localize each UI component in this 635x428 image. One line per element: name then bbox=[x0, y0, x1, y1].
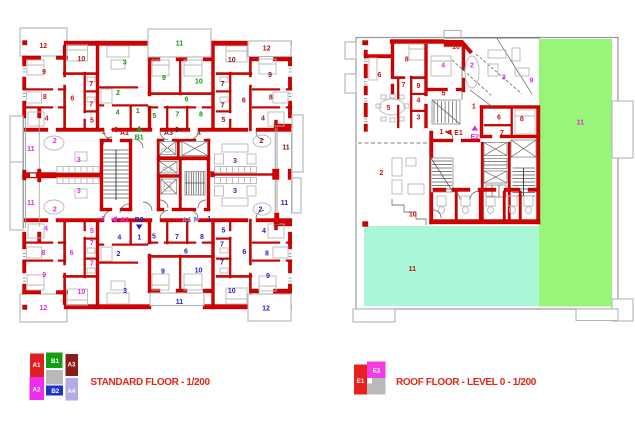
svg-text:1: 1 bbox=[137, 235, 141, 242]
svg-text:11: 11 bbox=[27, 200, 35, 207]
svg-text:7: 7 bbox=[89, 81, 93, 88]
svg-text:6: 6 bbox=[70, 96, 74, 103]
svg-text:10: 10 bbox=[195, 79, 203, 86]
svg-text:A4: A4 bbox=[67, 388, 75, 395]
svg-text:E2: E2 bbox=[471, 134, 480, 141]
svg-text:10: 10 bbox=[452, 44, 460, 51]
svg-text:E1: E1 bbox=[454, 130, 463, 137]
svg-text:9: 9 bbox=[530, 77, 534, 84]
svg-text:10: 10 bbox=[228, 57, 236, 64]
svg-text:6: 6 bbox=[185, 96, 189, 103]
svg-text:8: 8 bbox=[405, 57, 409, 64]
svg-text:2: 2 bbox=[379, 170, 383, 177]
svg-text:5: 5 bbox=[152, 113, 156, 120]
svg-text:3: 3 bbox=[502, 74, 506, 81]
svg-text:A1: A1 bbox=[120, 130, 129, 137]
svg-text:6: 6 bbox=[184, 248, 188, 255]
svg-text:4: 4 bbox=[262, 228, 266, 235]
svg-text:10: 10 bbox=[195, 267, 203, 274]
svg-text:10: 10 bbox=[409, 211, 417, 218]
svg-text:1: 1 bbox=[207, 216, 211, 223]
svg-text:10: 10 bbox=[78, 289, 86, 296]
svg-text:A1: A1 bbox=[33, 362, 41, 369]
svg-text:7: 7 bbox=[90, 240, 94, 247]
svg-text:E1: E1 bbox=[357, 378, 365, 385]
svg-text:9: 9 bbox=[42, 69, 46, 76]
svg-text:4: 4 bbox=[261, 115, 265, 122]
svg-text:11: 11 bbox=[281, 200, 289, 207]
svg-text:11: 11 bbox=[282, 145, 290, 152]
svg-text:7: 7 bbox=[89, 102, 93, 109]
svg-text:7: 7 bbox=[175, 234, 179, 241]
svg-text:8: 8 bbox=[269, 94, 273, 101]
svg-text:6: 6 bbox=[242, 249, 246, 256]
svg-text:2: 2 bbox=[53, 206, 57, 213]
svg-text:7: 7 bbox=[401, 82, 405, 89]
svg-text:5: 5 bbox=[90, 228, 94, 235]
svg-text:5: 5 bbox=[90, 118, 94, 125]
svg-text:12: 12 bbox=[39, 43, 47, 50]
svg-text:A4: A4 bbox=[182, 217, 191, 224]
svg-text:2: 2 bbox=[117, 251, 121, 258]
svg-text:8: 8 bbox=[200, 234, 204, 241]
svg-text:7: 7 bbox=[500, 130, 504, 137]
svg-text:2: 2 bbox=[116, 90, 120, 97]
svg-text:3: 3 bbox=[233, 188, 237, 195]
svg-text:10: 10 bbox=[228, 288, 236, 295]
svg-text:5: 5 bbox=[387, 105, 391, 112]
svg-text:4: 4 bbox=[117, 235, 121, 242]
svg-text:2: 2 bbox=[260, 138, 264, 145]
svg-text:7: 7 bbox=[90, 260, 94, 267]
svg-text:8: 8 bbox=[199, 112, 203, 119]
svg-text:7: 7 bbox=[220, 260, 224, 267]
svg-text:7: 7 bbox=[220, 241, 224, 248]
svg-text:B2: B2 bbox=[135, 217, 144, 224]
svg-text:A3: A3 bbox=[68, 362, 76, 369]
svg-text:9: 9 bbox=[42, 272, 46, 279]
svg-text:ROOF FLOOR - LEVEL 0 - 1/200: ROOF FLOOR - LEVEL 0 - 1/200 bbox=[396, 377, 537, 388]
svg-text:12: 12 bbox=[40, 305, 48, 312]
svg-text:1: 1 bbox=[440, 129, 444, 136]
svg-text:9: 9 bbox=[416, 83, 420, 90]
svg-text:2: 2 bbox=[470, 62, 474, 69]
svg-text:1: 1 bbox=[136, 108, 140, 115]
svg-text:A2: A2 bbox=[120, 217, 129, 224]
svg-text:4: 4 bbox=[441, 63, 445, 70]
svg-text:5: 5 bbox=[222, 227, 226, 234]
svg-text:7: 7 bbox=[221, 103, 225, 110]
svg-text:3: 3 bbox=[233, 158, 237, 165]
svg-text:5: 5 bbox=[442, 91, 446, 98]
svg-text:E2: E2 bbox=[373, 368, 381, 375]
svg-text:3: 3 bbox=[416, 115, 420, 122]
svg-text:2: 2 bbox=[53, 138, 57, 145]
svg-text:11: 11 bbox=[577, 120, 585, 127]
svg-text:11: 11 bbox=[176, 299, 184, 306]
svg-text:7: 7 bbox=[175, 112, 179, 119]
svg-text:8: 8 bbox=[265, 250, 269, 257]
svg-text:7: 7 bbox=[221, 81, 225, 88]
svg-text:1: 1 bbox=[472, 104, 476, 111]
svg-text:12: 12 bbox=[263, 46, 271, 53]
svg-text:3: 3 bbox=[123, 60, 127, 67]
svg-text:3: 3 bbox=[77, 157, 81, 164]
svg-text:B2: B2 bbox=[51, 388, 59, 395]
svg-text:11: 11 bbox=[27, 146, 35, 153]
svg-text:STANDARD FLOOR - 1/200: STANDARD FLOOR - 1/200 bbox=[90, 377, 210, 388]
svg-text:1: 1 bbox=[101, 216, 105, 223]
svg-text:8: 8 bbox=[520, 116, 524, 123]
svg-text:B1: B1 bbox=[135, 135, 144, 142]
svg-text:5: 5 bbox=[221, 117, 225, 124]
svg-text:6: 6 bbox=[70, 250, 74, 257]
svg-text:1: 1 bbox=[102, 129, 106, 136]
svg-text:5: 5 bbox=[152, 233, 156, 240]
svg-text:A3: A3 bbox=[164, 130, 173, 137]
svg-text:9: 9 bbox=[162, 75, 166, 82]
svg-text:12: 12 bbox=[262, 305, 270, 312]
svg-text:A2: A2 bbox=[33, 387, 41, 394]
svg-text:9: 9 bbox=[268, 72, 272, 79]
svg-text:11: 11 bbox=[409, 266, 417, 273]
svg-text:4: 4 bbox=[116, 109, 120, 116]
svg-text:4: 4 bbox=[44, 226, 48, 233]
svg-text:9: 9 bbox=[161, 268, 165, 275]
svg-text:6: 6 bbox=[242, 97, 246, 104]
svg-text:10: 10 bbox=[78, 56, 86, 63]
svg-text:11: 11 bbox=[176, 41, 184, 48]
svg-text:6: 6 bbox=[497, 115, 501, 122]
svg-text:4: 4 bbox=[416, 98, 420, 105]
svg-text:6: 6 bbox=[377, 72, 381, 79]
svg-text:4: 4 bbox=[45, 116, 49, 123]
svg-text:8: 8 bbox=[43, 94, 47, 101]
svg-text:2: 2 bbox=[259, 207, 263, 214]
svg-text:1: 1 bbox=[197, 129, 201, 136]
svg-text:9: 9 bbox=[266, 273, 270, 280]
svg-text:3: 3 bbox=[123, 288, 127, 295]
svg-text:8: 8 bbox=[41, 250, 45, 257]
svg-text:3: 3 bbox=[77, 188, 81, 195]
svg-text:B1: B1 bbox=[51, 358, 59, 365]
